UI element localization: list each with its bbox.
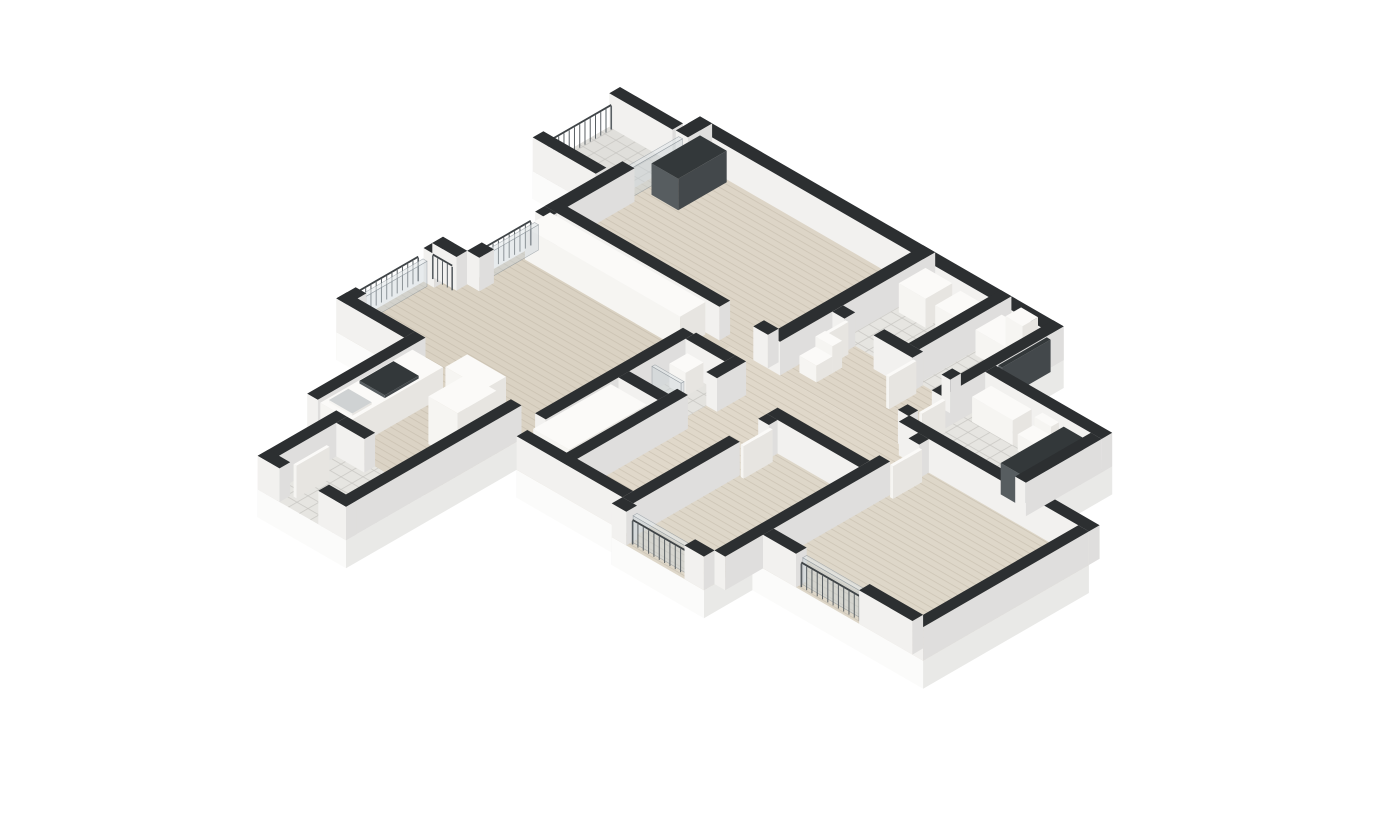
wall <box>467 242 494 291</box>
floorplan-canvas <box>0 0 1400 820</box>
wall <box>753 320 778 368</box>
floorplan-3d-render <box>0 0 1400 820</box>
